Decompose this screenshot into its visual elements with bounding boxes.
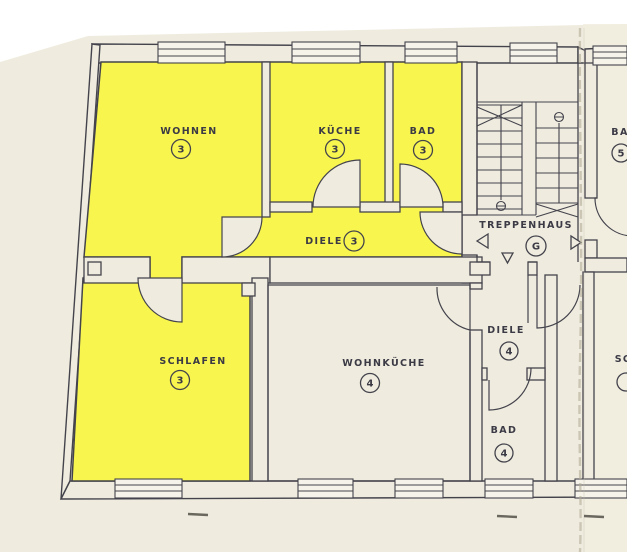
room-number-kueche: 3 [332,145,339,156]
window-top-stairwell [510,43,557,63]
window-top-right [593,46,627,65]
room-label-bad3: BAD [410,126,437,137]
room-label-wohnkueche: WOHNKÜCHE [342,358,425,369]
window-bottom-bad4 [485,479,533,498]
wall-wohnen-kueche [262,62,270,217]
room-number-bad5: 5 [618,149,625,160]
window-bottom-wohnkueche-1 [298,479,353,498]
room-number-wohnkueche: 4 [367,379,374,390]
room-label-diele4: DIELE [487,325,524,336]
room-number-treppenhaus: G [532,242,540,253]
floor-plan-svg: WOHNEN 3 KÜCHE 3 BAD 3 DIELE 3 SCHLAFEN … [0,0,627,552]
window-top-wohnen [158,42,225,63]
wall-kueche-bad [385,62,393,207]
room-label-bad5: BA [611,127,627,138]
room-number-bad4: 4 [501,449,508,460]
floor-plan-page: WOHNEN 3 KÜCHE 3 BAD 3 DIELE 3 SCHLAFEN … [0,0,627,552]
room-number-bad3: 3 [420,146,427,157]
room-label-treppenhaus: TREPPENHAUS [479,220,573,231]
window-bottom-schlafen [115,479,182,498]
room-label-schlafen5: SC [615,354,627,365]
room-number-diele4: 4 [506,347,513,358]
wall-wohnkueche-diele4 [470,330,482,481]
wall-diele4-east [545,275,557,481]
room-label-bad4: BAD [491,425,518,436]
window-top-bad3 [405,42,457,63]
chimney-square-2 [242,283,255,296]
window-bottom-right [575,479,627,498]
room-number-schlafen: 3 [177,376,184,387]
wall-bad-stairwell [462,62,477,215]
wall-schlafen-wohnkueche [252,278,268,481]
room-label-schlafen: SCHLAFEN [159,356,226,367]
room-number-wohnen: 3 [178,145,185,156]
window-top-kueche [292,42,360,63]
room-label-wohnen: WOHNEN [160,126,217,137]
room-label-diele3: DIELE [305,236,342,247]
room-number-diele3: 3 [351,237,358,248]
chimney-square-1 [88,262,101,275]
wall-diele-wohnkueche [270,257,482,283]
room-label-kueche: KÜCHE [318,126,361,137]
window-bottom-wohnkueche-2 [395,479,443,498]
